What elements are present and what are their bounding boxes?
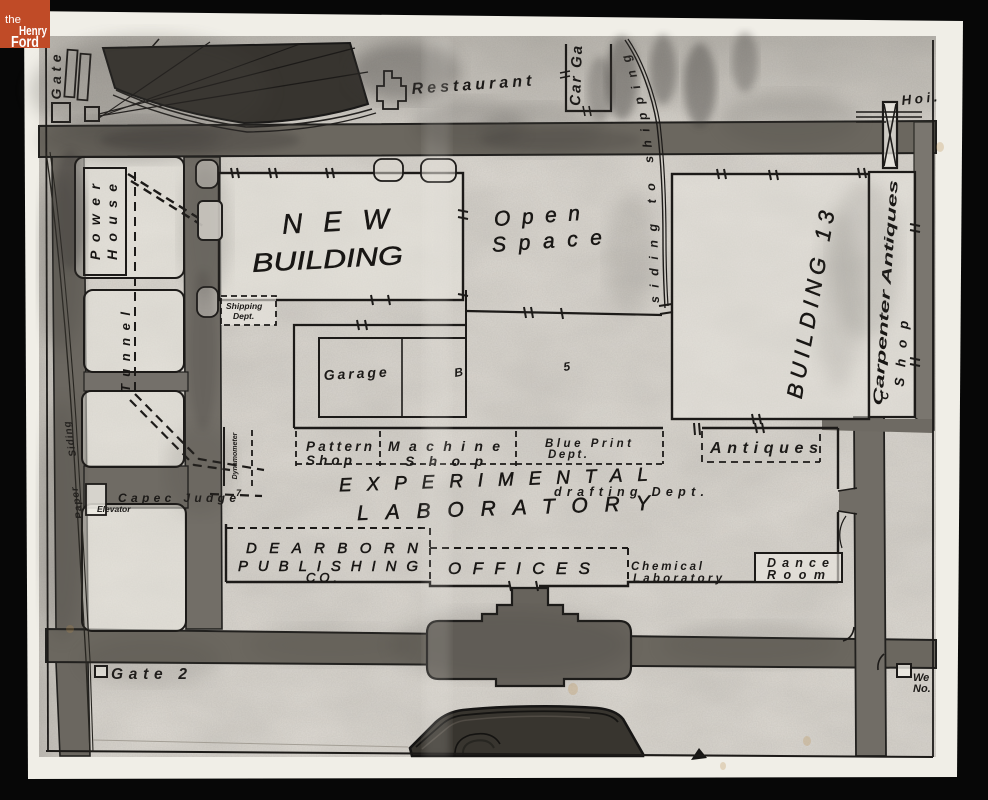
- svg-text:Laboratory: Laboratory: [633, 573, 723, 585]
- svg-text:Chemical: Chemical: [631, 561, 703, 573]
- svg-text:Shipping: Shipping: [226, 301, 263, 311]
- svg-text:Dept.: Dept.: [548, 449, 587, 461]
- svg-text:Elevator: Elevator: [97, 504, 131, 514]
- svg-text:Ford: Ford: [11, 34, 39, 51]
- svg-text:Dept.: Dept.: [233, 311, 254, 321]
- svg-text:No.: No.: [913, 683, 931, 695]
- svg-text:NEW: NEW: [281, 203, 392, 240]
